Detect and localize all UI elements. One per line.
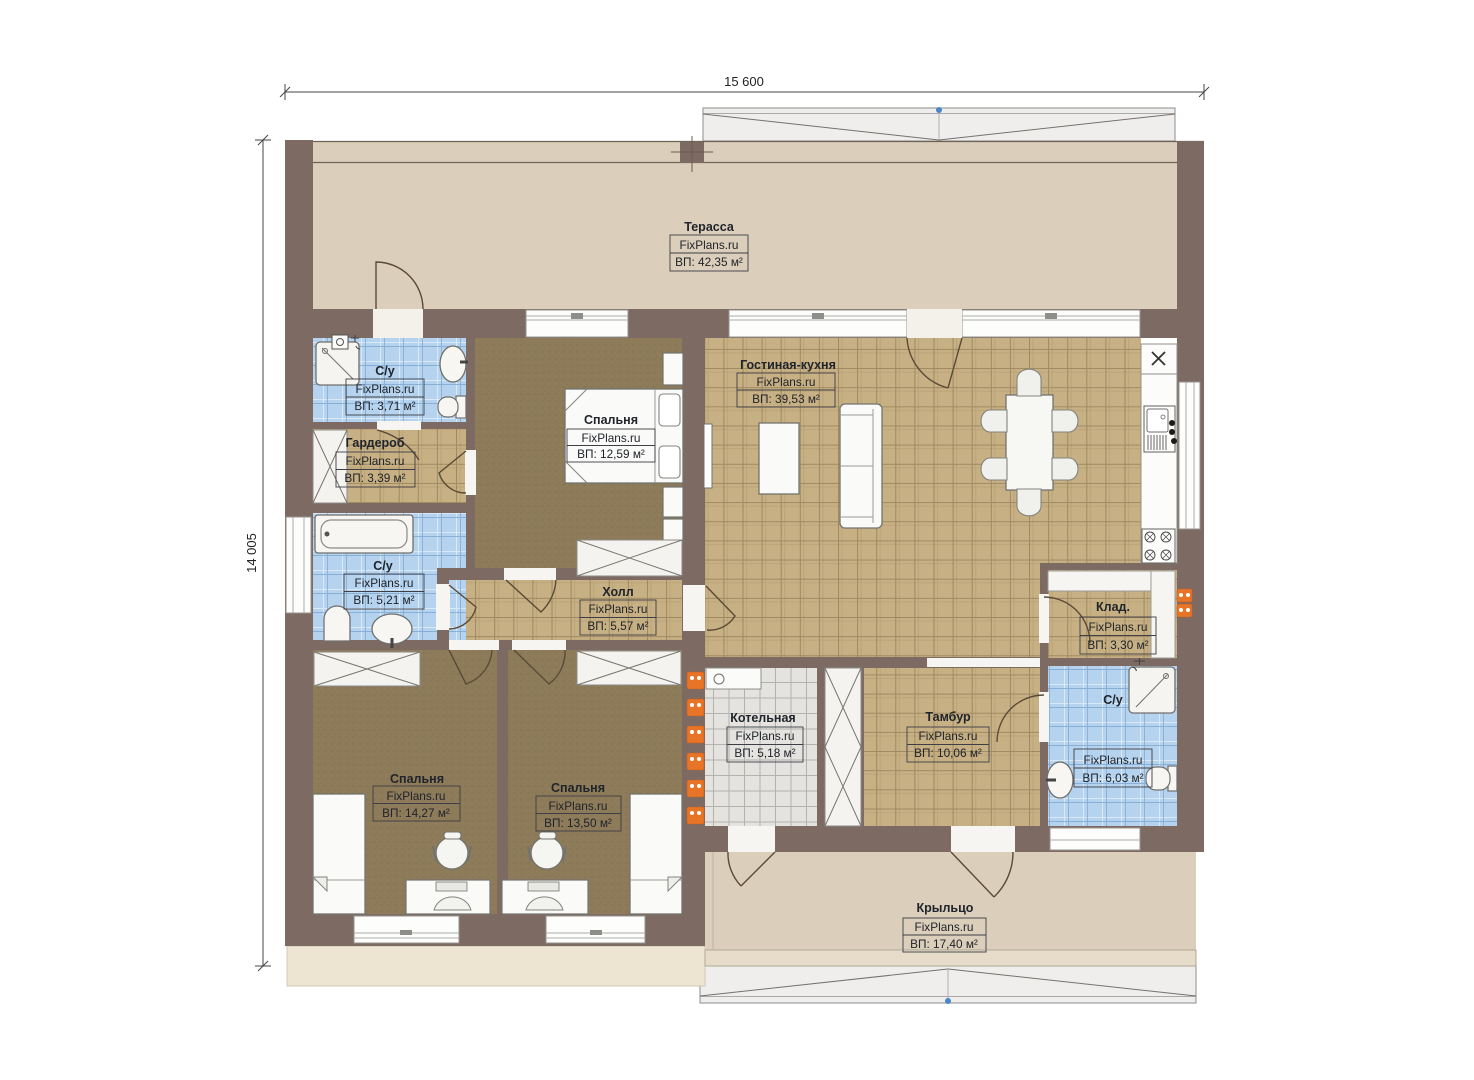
svg-text:FixPlans.ru: FixPlans.ru [914,920,973,934]
svg-text:ВП: 17,40 м²: ВП: 17,40 м² [910,937,978,951]
svg-text:FixPlans.ru: FixPlans.ru [588,602,647,616]
svg-text:Гардероб: Гардероб [345,436,404,450]
svg-text:14 005: 14 005 [244,533,259,573]
svg-text:FixPlans.ru: FixPlans.ru [355,382,414,396]
svg-text:FixPlans.ru: FixPlans.ru [354,576,413,590]
svg-text:ВП: 3,30 м²: ВП: 3,30 м² [1087,638,1148,652]
svg-text:ВП: 13,50 м²: ВП: 13,50 м² [544,816,612,830]
svg-text:Котельная: Котельная [730,711,795,725]
svg-text:Крыльцо: Крыльцо [917,901,974,915]
svg-text:Спальня: Спальня [584,413,638,427]
svg-text:Тамбур: Тамбур [925,710,971,724]
svg-text:ВП: 39,53 м²: ВП: 39,53 м² [752,392,820,406]
svg-text:ВП: 42,35 м²: ВП: 42,35 м² [675,255,743,269]
svg-text:Спальня: Спальня [551,781,605,795]
svg-text:FixPlans.ru: FixPlans.ru [735,729,794,743]
svg-text:ВП: 5,57 м²: ВП: 5,57 м² [587,619,648,633]
svg-text:FixPlans.ru: FixPlans.ru [386,789,445,803]
svg-text:FixPlans.ru: FixPlans.ru [345,454,404,468]
svg-text:С/у: С/у [373,559,393,573]
svg-text:FixPlans.ru: FixPlans.ru [918,729,977,743]
svg-text:ВП: 6,03 м²: ВП: 6,03 м² [1082,771,1143,785]
svg-text:ВП: 5,21 м²: ВП: 5,21 м² [353,593,414,607]
svg-text:ВП: 10,06 м²: ВП: 10,06 м² [914,746,982,760]
svg-text:ВП: 12,59 м²: ВП: 12,59 м² [577,447,645,461]
svg-text:С/у: С/у [375,364,395,378]
svg-text:FixPlans.ru: FixPlans.ru [581,431,640,445]
svg-text:Терасса: Терасса [684,220,735,234]
svg-text:15 600: 15 600 [724,74,764,89]
svg-text:ВП: 5,18 м²: ВП: 5,18 м² [734,746,795,760]
svg-text:Холл: Холл [602,585,633,599]
svg-text:ВП: 14,27 м²: ВП: 14,27 м² [382,806,450,820]
svg-text:Клад.: Клад. [1096,600,1130,614]
svg-text:FixPlans.ru: FixPlans.ru [1083,753,1142,767]
svg-text:Спальня: Спальня [390,772,444,786]
svg-text:FixPlans.ru: FixPlans.ru [679,238,738,252]
svg-text:Гостиная-кухня: Гостиная-кухня [740,358,836,372]
svg-text:ВП: 3,39 м²: ВП: 3,39 м² [344,471,405,485]
svg-text:С/у: С/у [1103,693,1123,707]
svg-text:FixPlans.ru: FixPlans.ru [548,799,607,813]
svg-text:ВП: 3,71 м²: ВП: 3,71 м² [354,399,415,413]
svg-text:FixPlans.ru: FixPlans.ru [756,375,815,389]
svg-text:FixPlans.ru: FixPlans.ru [1088,620,1147,634]
